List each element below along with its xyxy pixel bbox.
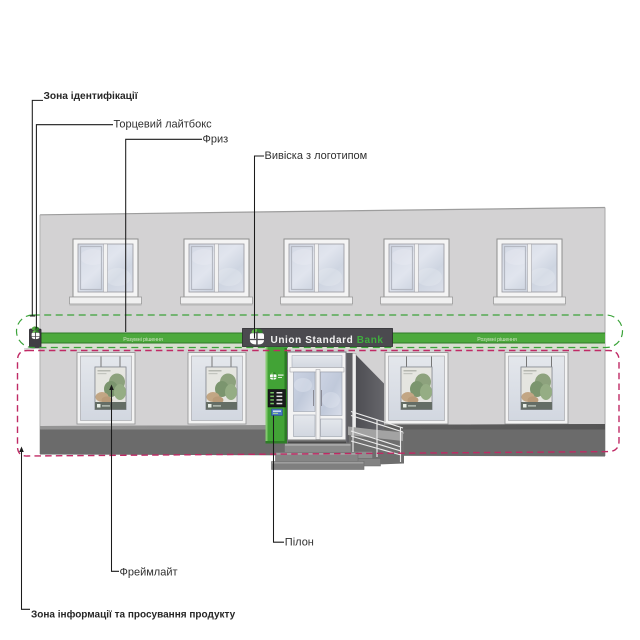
svg-text:Union Standard Bank: Union Standard Bank — [271, 335, 384, 346]
svg-text:Пілон: Пілон — [285, 537, 314, 549]
svg-text:Вивіска з логотипом: Вивіска з логотипом — [265, 150, 368, 162]
svg-text:Торцевий лайтбокс: Торцевий лайтбокс — [114, 118, 213, 130]
svg-text:Розумні рішення: Розумні рішення — [123, 337, 163, 343]
svg-text:Розумні рішення: Розумні рішення — [477, 337, 517, 343]
svg-text:Фриз: Фриз — [203, 134, 229, 146]
svg-text:Фреймлайт: Фреймлайт — [120, 567, 178, 579]
svg-text:Зона інформації та просування: Зона інформації та просування продукту — [31, 608, 236, 620]
svg-text:Зона ідентифікації: Зона ідентифікації — [44, 90, 139, 102]
